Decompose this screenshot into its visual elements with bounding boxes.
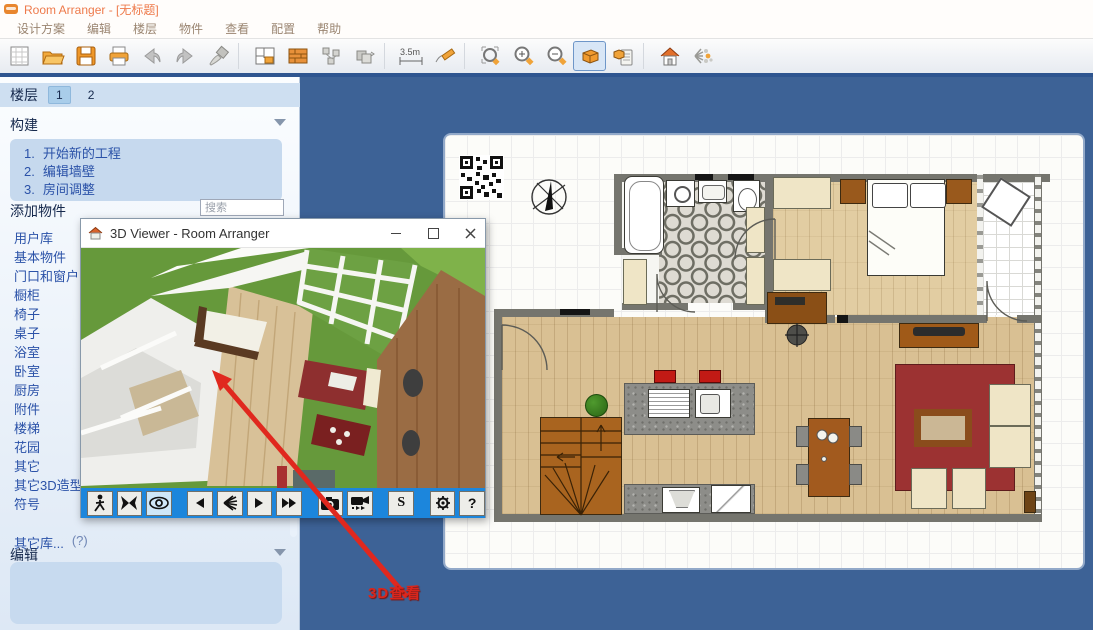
floors-label: 楼层 — [10, 85, 38, 105]
look-around-icon[interactable] — [146, 491, 172, 516]
undo-icon[interactable] — [135, 41, 168, 71]
settings-gear-icon[interactable] — [430, 491, 456, 516]
zoom-in-icon[interactable] — [507, 41, 540, 71]
copy-3d-view-icon[interactable] — [606, 41, 639, 71]
save-icon[interactable] — [69, 41, 102, 71]
ruler-label: 3.5m — [400, 47, 420, 57]
open-folder-icon[interactable] — [36, 41, 69, 71]
viewer-title-bar[interactable]: 3D Viewer - Room Arranger — [81, 219, 485, 248]
build-step[interactable]: 1.开始新的工程 — [24, 145, 282, 163]
group-objects-icon[interactable] — [347, 41, 380, 71]
new-document-icon[interactable] — [3, 41, 36, 71]
viewer-3d-window[interactable]: 3D Viewer - Room Arranger — [80, 218, 486, 518]
toolbar-separator — [643, 43, 651, 69]
light-icon[interactable] — [217, 491, 243, 516]
format-brush-icon[interactable] — [201, 41, 234, 71]
fast-forward-icon[interactable] — [276, 491, 302, 516]
title-bar: Room Arranger - [无标题] — [0, 0, 1093, 18]
compass-icon — [532, 180, 566, 214]
measure-ruler-icon[interactable]: 3.5m — [394, 41, 427, 71]
build-step[interactable]: 3.房间调整 — [24, 181, 282, 199]
build-section-label: 构建 — [10, 115, 38, 135]
menu-view[interactable]: 查看 — [214, 18, 260, 39]
menu-objects[interactable]: 物件 — [168, 18, 214, 39]
menu-config[interactable]: 配置 — [260, 18, 306, 39]
toolbar-separator — [384, 43, 392, 69]
menu-bar: 设计方案 编辑 楼层 物件 查看 配置 帮助 — [0, 18, 1093, 38]
menu-edit[interactable]: 编辑 — [76, 18, 122, 39]
other-libraries-hint: (?) — [72, 533, 88, 552]
step-back-icon[interactable] — [187, 491, 213, 516]
floors-row: 楼层 1 2 — [0, 83, 300, 107]
walk-icon[interactable] — [87, 491, 113, 516]
maximize-icon[interactable] — [418, 222, 448, 244]
zoom-out-icon[interactable] — [540, 41, 573, 71]
toolbar-separator — [464, 43, 472, 69]
toolbar-separator — [238, 43, 246, 69]
build-step[interactable]: 2.编辑墙壁 — [24, 163, 282, 181]
build-steps-panel: 1.开始新的工程 2.编辑墙壁 3.房间调整 — [10, 139, 282, 201]
screenshot-icon[interactable] — [318, 491, 344, 516]
house-icon[interactable] — [653, 41, 686, 71]
view-3d-icon[interactable] — [573, 41, 606, 71]
viewer-app-icon — [88, 226, 103, 240]
draw-pencil-icon[interactable] — [427, 41, 460, 71]
zoom-fit-icon[interactable] — [474, 41, 507, 71]
floor-tab-1[interactable]: 1 — [48, 86, 71, 104]
play-icon[interactable] — [247, 491, 273, 516]
annotation-label: 3D查看 — [368, 582, 421, 603]
edit-panel — [10, 562, 282, 624]
explode-view-icon[interactable] — [686, 41, 719, 71]
menu-help[interactable]: 帮助 — [306, 18, 352, 39]
wall-brick-icon[interactable] — [281, 41, 314, 71]
minimize-icon[interactable] — [381, 222, 411, 244]
main-toolbar: 3.5m — [0, 38, 1093, 73]
menu-floors[interactable]: 楼层 — [122, 18, 168, 39]
stereo-icon[interactable]: S — [388, 491, 414, 516]
search-input[interactable] — [200, 199, 284, 216]
close-icon[interactable] — [455, 222, 485, 244]
viewer-3d-scene[interactable] — [81, 248, 485, 488]
viewer-title: 3D Viewer - Room Arranger — [110, 226, 374, 241]
add-objects-label: 添加物件 — [10, 201, 66, 221]
app-icon — [4, 4, 18, 14]
floor-tab-2[interactable]: 2 — [81, 87, 102, 103]
chevron-down-icon[interactable] — [274, 549, 286, 556]
print-icon[interactable] — [102, 41, 135, 71]
floorplan-canvas[interactable] — [443, 133, 1085, 570]
chevron-down-icon[interactable] — [274, 119, 286, 126]
select-objects-icon[interactable] — [314, 41, 347, 71]
fly-icon[interactable] — [117, 491, 143, 516]
viewer-toolbar: S ? — [81, 488, 485, 518]
help-icon[interactable]: ? — [459, 491, 485, 516]
record-video-icon[interactable] — [347, 491, 373, 516]
menu-design[interactable]: 设计方案 — [6, 18, 76, 39]
floorplan-detail-overlay — [445, 135, 1085, 570]
window-title: Room Arranger - [无标题] — [24, 1, 159, 18]
floor-plan-icon[interactable] — [248, 41, 281, 71]
redo-icon[interactable] — [168, 41, 201, 71]
